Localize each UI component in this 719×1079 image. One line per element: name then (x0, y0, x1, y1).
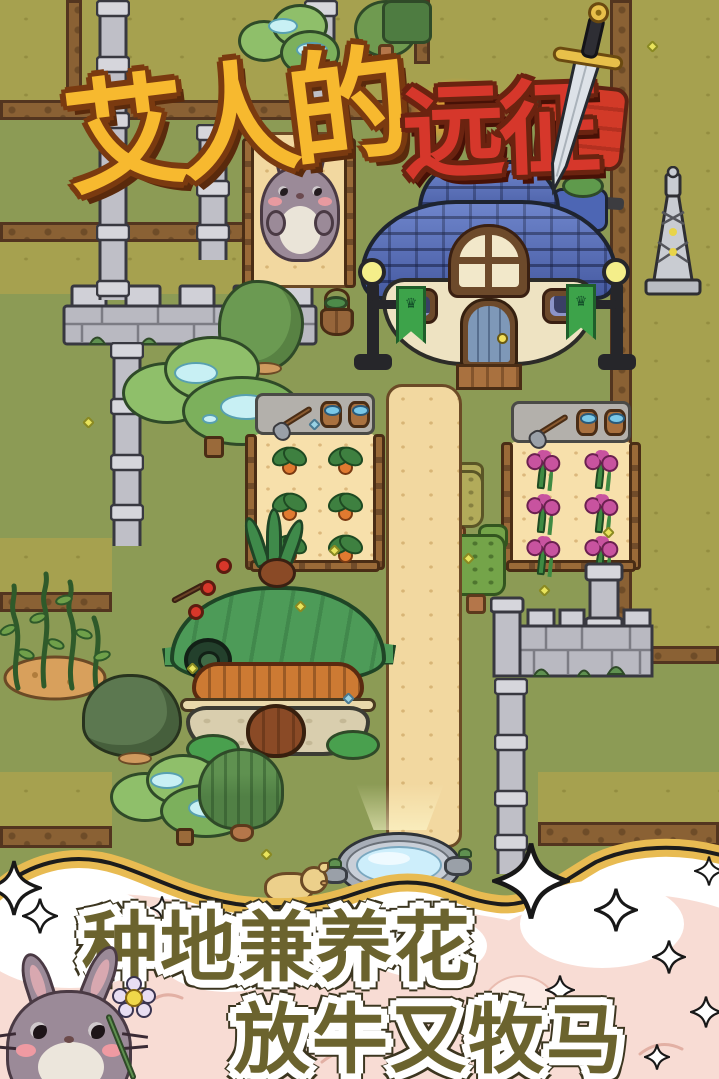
water-barrel-icon (576, 409, 598, 436)
bunny-nose (64, 1036, 74, 1043)
castle-wall (490, 562, 656, 682)
flower-bloom (112, 976, 156, 1020)
sparkle-star (492, 842, 570, 920)
sparkle-star (644, 1044, 670, 1070)
sparkle-star (652, 940, 686, 974)
crown-icon: ♛ (405, 296, 418, 312)
berry (216, 558, 232, 574)
sparkle-star (594, 888, 638, 932)
bunny-eye (88, 1022, 105, 1039)
water-barrel-icon (604, 409, 626, 436)
title-gold-text: 艾人的 (57, 31, 408, 213)
berry (188, 604, 204, 620)
sparkle-star (694, 856, 719, 886)
carrot-plant[interactable] (338, 460, 353, 475)
water-barrel-icon (348, 401, 370, 428)
basket-body (320, 308, 354, 336)
tree-trunk (204, 436, 224, 458)
sparkle-fleck (82, 416, 95, 429)
shovel-icon (537, 413, 569, 436)
mascot-bunny (0, 938, 160, 1079)
house-door[interactable] (460, 298, 518, 368)
derrick-tower[interactable] (640, 166, 706, 298)
carrot-plant[interactable] (282, 506, 297, 521)
sparkle-star (690, 996, 719, 1028)
lamp-post (350, 258, 396, 376)
lamp-post (592, 258, 638, 376)
water-barrel-icon (320, 401, 342, 428)
carrot-plant[interactable] (338, 506, 353, 521)
bush (326, 730, 380, 760)
house-steps (456, 364, 522, 390)
dirt-path-main (386, 384, 462, 848)
berry (200, 580, 216, 596)
turnip-house[interactable] (162, 542, 394, 760)
bunny-eye (30, 1022, 47, 1039)
door-knob (497, 333, 508, 344)
house-window-center (448, 224, 530, 298)
sparkle-star (22, 898, 58, 934)
farm-plot-flowers[interactable] (508, 398, 634, 570)
carrot-plant[interactable] (282, 460, 297, 475)
bunny-cheek (16, 1044, 36, 1057)
basket[interactable] (318, 294, 356, 338)
plot-toolbar (511, 401, 631, 443)
tagline-line2: 放牛又牧马 (234, 978, 624, 1079)
sprout-ring (258, 558, 296, 588)
crown-icon: ♛ (575, 294, 588, 310)
game-map: ♛ ♛ (0, 0, 719, 1079)
fence (629, 442, 641, 570)
pine-tree (82, 674, 186, 766)
